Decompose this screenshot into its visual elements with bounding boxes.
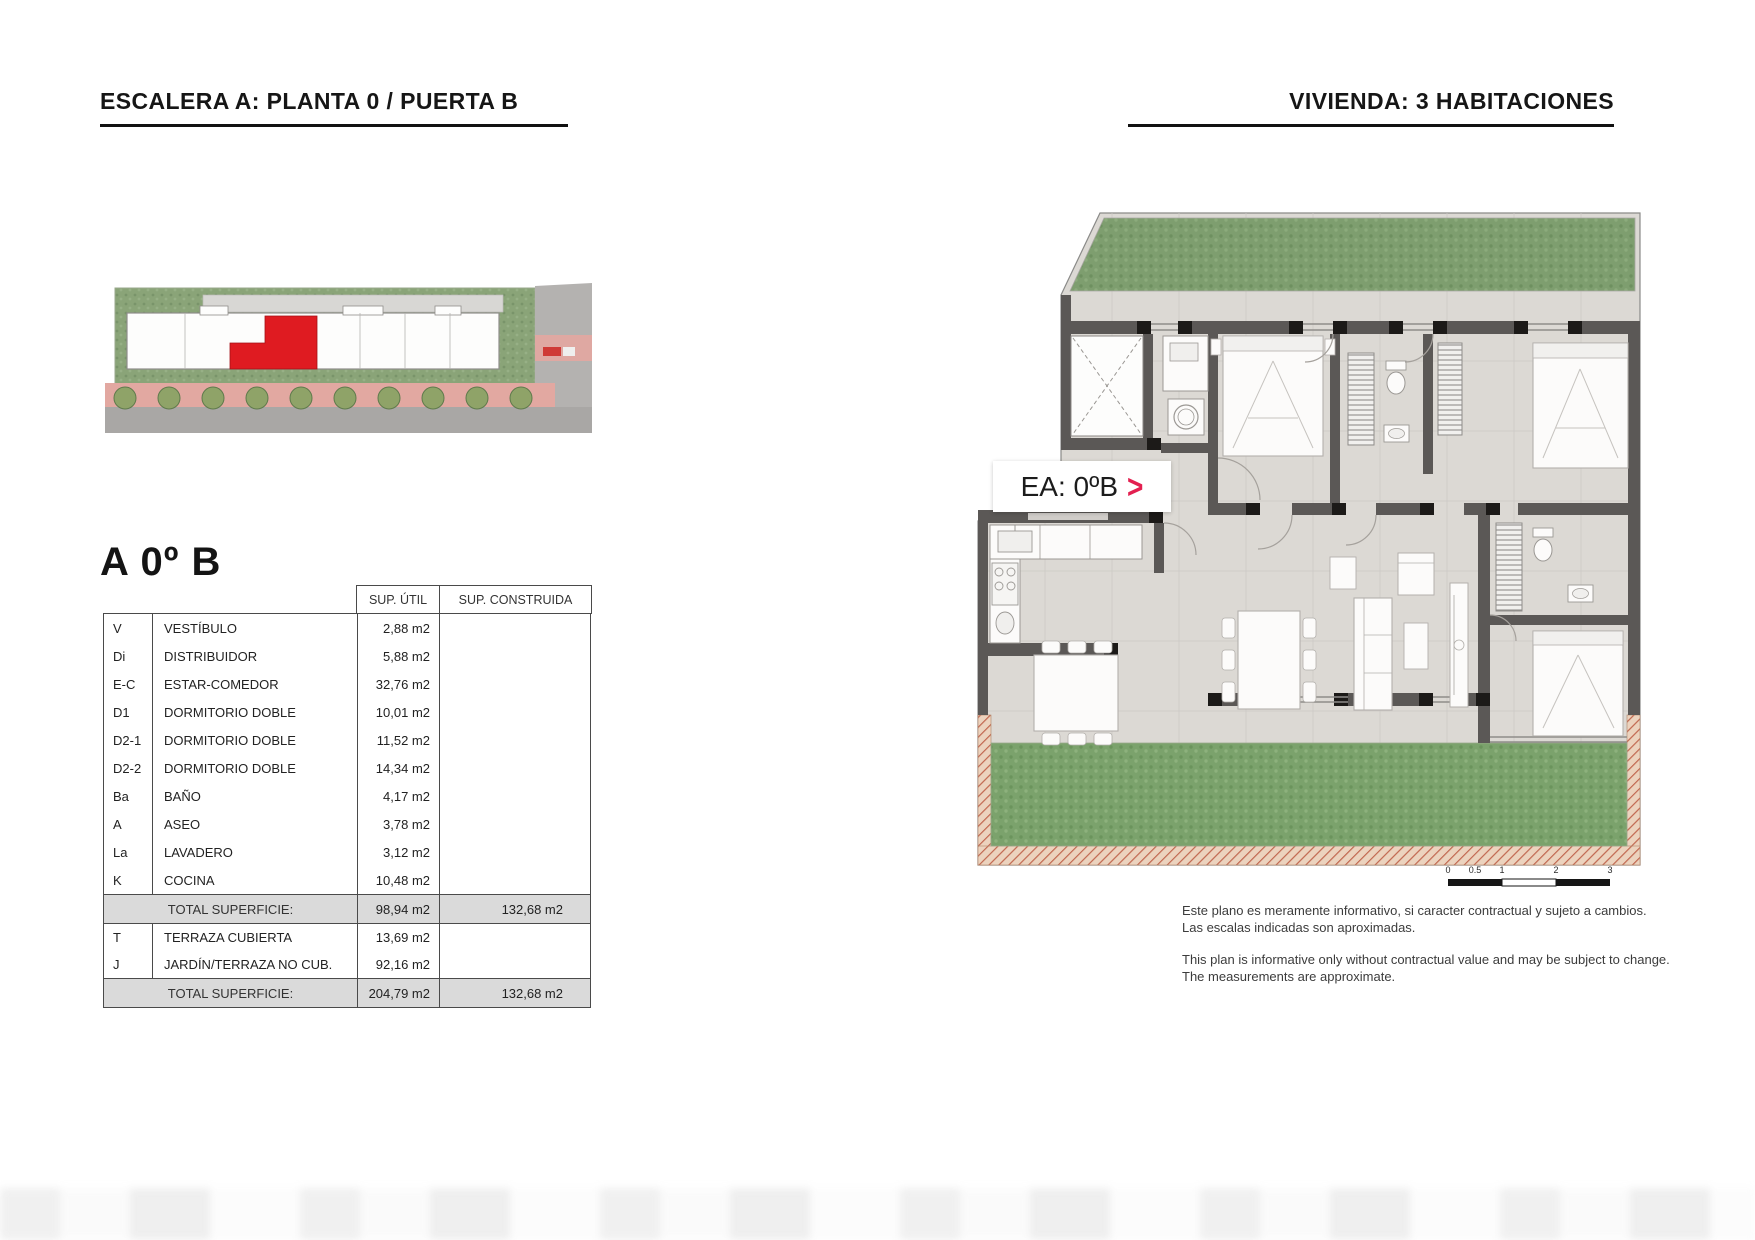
table-row: D2-2 DORMITORIO DOBLE 14,34 m2 bbox=[104, 754, 590, 782]
table-row: Ba BAÑO 4,17 m2 bbox=[104, 782, 590, 810]
table-row: E-C ESTAR-COMEDOR 32,76 m2 bbox=[104, 670, 590, 698]
floor-plan: 0 0.5 1 2 3 bbox=[878, 203, 1668, 898]
table-row: V VESTÍBULO 2,88 m2 bbox=[104, 614, 590, 642]
shower-tray bbox=[1496, 523, 1522, 611]
areas-table-header: SUP. ÚTIL SUP. CONSTRUIDA bbox=[356, 585, 592, 614]
svg-text:3: 3 bbox=[1607, 865, 1612, 875]
watermark-band bbox=[0, 1188, 1755, 1240]
table-row: K COCINA 10,48 m2 bbox=[104, 866, 590, 894]
shower-tray bbox=[1348, 353, 1374, 445]
table-row: T TERRAZA CUBIERTA 13,69 m2 bbox=[104, 924, 590, 951]
bed-icon-d2-1 bbox=[1533, 631, 1623, 736]
tv-bench bbox=[1450, 583, 1468, 707]
bed-icon-d2-2 bbox=[1533, 343, 1628, 468]
total-row-final: TOTAL SUPERFICIE: 204,79 m2 132,68 m2 bbox=[104, 978, 590, 1007]
scale-bar: 0 0.5 1 2 3 bbox=[1445, 865, 1612, 886]
disclaimer-es: Este plano es meramente informativo, si … bbox=[1182, 902, 1682, 936]
table-row: A ASEO 3,78 m2 bbox=[104, 810, 590, 838]
table-row: Di DISTRIBUIDOR 5,88 m2 bbox=[104, 642, 590, 670]
toilet-icon bbox=[1533, 528, 1553, 561]
garden-hatch-left bbox=[978, 715, 991, 865]
bed-icon-d1 bbox=[1211, 336, 1335, 456]
unit-title: A 0º B bbox=[100, 540, 221, 585]
wardrobe-icon bbox=[1438, 343, 1462, 435]
table-row: D2-1 DORMITORIO DOBLE 11,52 m2 bbox=[104, 726, 590, 754]
plan-sheet: ESCALERA A: PLANTA 0 / PUERTA B VIVIENDA… bbox=[0, 0, 1755, 1240]
total-row-interior: TOTAL SUPERFICIE: 98,94 m2 132,68 m2 bbox=[104, 894, 590, 924]
col-sup-util: SUP. ÚTIL bbox=[357, 586, 440, 613]
unit-plan-tag: EA: 0ºB > bbox=[993, 461, 1171, 512]
garden-hatch-right bbox=[1627, 715, 1640, 865]
side-table bbox=[1330, 557, 1356, 589]
garden-grass bbox=[991, 743, 1627, 846]
coffee-table bbox=[1404, 623, 1428, 669]
page-title-right: VIVIENDA: 3 HABITACIONES bbox=[1128, 88, 1614, 127]
areas-table: SUP. ÚTIL SUP. CONSTRUIDA V VESTÍBULO 2,… bbox=[103, 613, 591, 1008]
garden-hatch-bottom bbox=[978, 846, 1640, 865]
top-garden bbox=[1070, 218, 1635, 291]
sink-icon bbox=[1384, 425, 1409, 442]
laundry-fixtures bbox=[1163, 336, 1208, 435]
armchair-icon bbox=[1398, 553, 1434, 595]
table-row: D1 DORMITORIO DOBLE 10,01 m2 bbox=[104, 698, 590, 726]
toilet-icon bbox=[1386, 361, 1406, 394]
svg-text:1: 1 bbox=[1499, 865, 1504, 875]
disclaimer-en: This plan is informative only without co… bbox=[1182, 951, 1682, 985]
chevron-right-icon: > bbox=[1127, 467, 1143, 505]
site-plan bbox=[105, 283, 592, 433]
sink-icon bbox=[1568, 585, 1593, 602]
svg-text:0.5: 0.5 bbox=[1469, 865, 1482, 875]
unit-plan-tag-text: EA: 0ºB bbox=[1021, 471, 1118, 503]
elevator-icon bbox=[1071, 336, 1143, 436]
terrace-table bbox=[1034, 641, 1118, 745]
col-sup-construida: SUP. CONSTRUIDA bbox=[440, 586, 591, 613]
sofa-icon bbox=[1354, 598, 1392, 710]
table-row: J JARDÍN/TERRAZA NO CUB. 92,16 m2 bbox=[104, 951, 590, 978]
svg-text:2: 2 bbox=[1553, 865, 1558, 875]
page-title-left: ESCALERA A: PLANTA 0 / PUERTA B bbox=[100, 88, 568, 127]
table-row: La LAVADERO 3,12 m2 bbox=[104, 838, 590, 866]
disclaimer: Este plano es meramente informativo, si … bbox=[1182, 902, 1682, 1000]
svg-text:0: 0 bbox=[1445, 865, 1450, 875]
kitchen-sink-icon bbox=[998, 531, 1032, 552]
stove-icon bbox=[992, 563, 1018, 634]
